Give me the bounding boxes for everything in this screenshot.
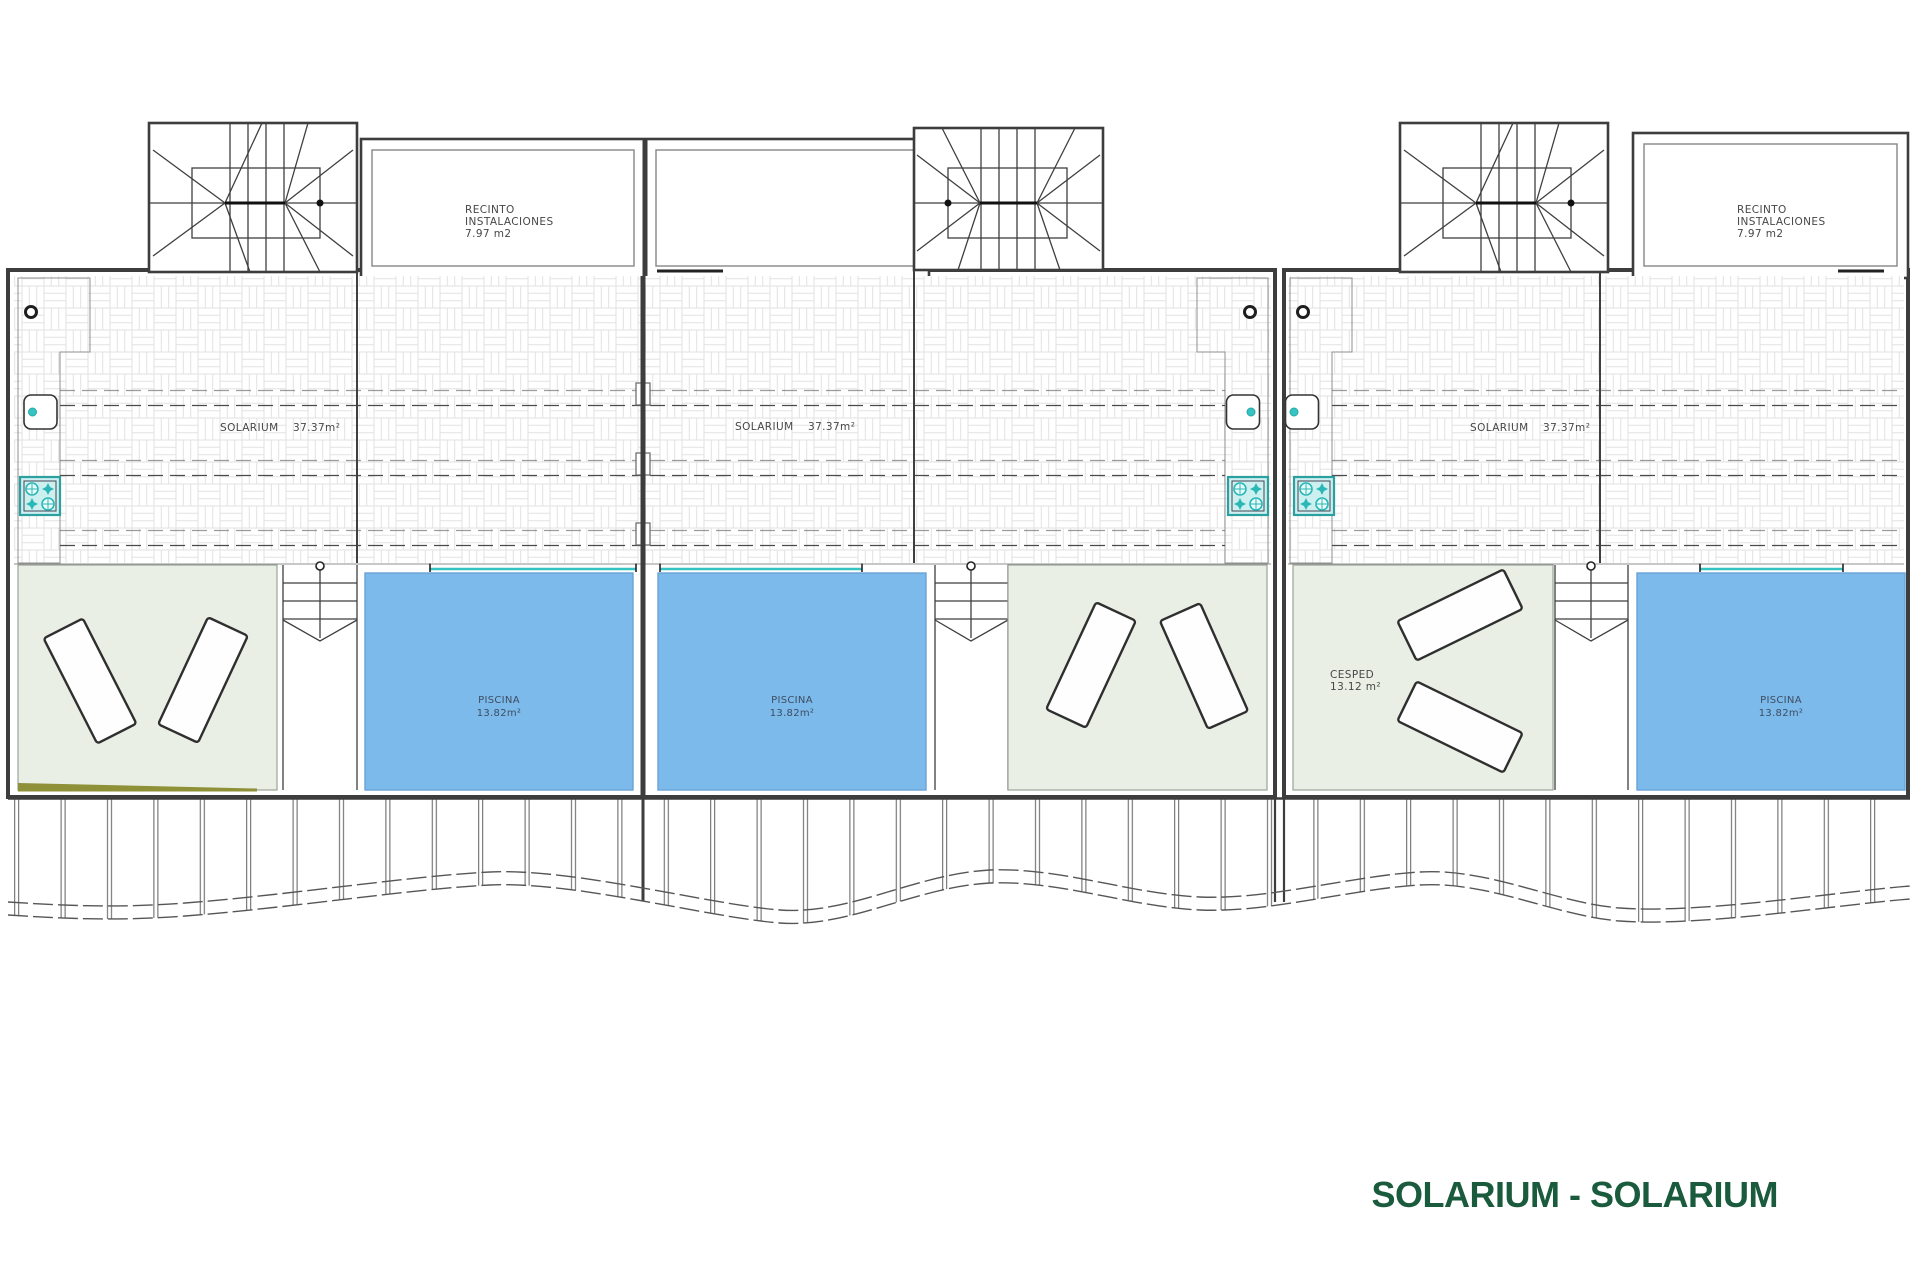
grill-icon bbox=[20, 477, 60, 515]
pool bbox=[365, 573, 633, 790]
unit-2-stairwell bbox=[914, 128, 1103, 270]
piscina-area: 13.82m² bbox=[477, 708, 521, 719]
recinto-area: 7.97 m2 bbox=[1737, 228, 1783, 240]
recinto-label-line1: RECINTO bbox=[1737, 204, 1787, 216]
stair-node-dot bbox=[317, 200, 324, 207]
sink-icon bbox=[1286, 395, 1319, 429]
light-icon bbox=[1298, 307, 1309, 318]
unit-1-solarium: SOLARIUM 37.37m² bbox=[14, 272, 641, 563]
solarium-label: SOLARIUM bbox=[735, 421, 794, 433]
boundary-fence bbox=[8, 797, 1910, 1000]
unit-3-solarium: SOLARIUM 37.37m² bbox=[1286, 272, 1905, 563]
sink-icon bbox=[24, 395, 57, 429]
light-icon bbox=[1245, 307, 1256, 318]
solarium-area: 37.37m² bbox=[808, 421, 855, 433]
solarium-label: SOLARIUM bbox=[220, 422, 279, 434]
pool bbox=[1637, 573, 1905, 790]
roof-plant-rooms-a: RECINTO INSTALACIONES 7.97 m2 bbox=[361, 139, 929, 278]
solarium-area: 37.37m² bbox=[293, 422, 340, 434]
floorplan-canvas: RECINTO INSTALACIONES 7.97 m2 RECINTO IN… bbox=[0, 0, 1920, 1280]
cesped-label: CESPED bbox=[1330, 669, 1374, 681]
recinto-area: 7.97 m2 bbox=[465, 228, 511, 240]
unit-3-plant-room: RECINTO INSTALACIONES 7.97 m2 bbox=[1633, 133, 1908, 278]
solarium-label: SOLARIUM bbox=[1470, 422, 1529, 434]
stair-node-dot bbox=[945, 200, 952, 207]
piscina-label: PISCINA bbox=[478, 695, 520, 706]
sheet-title: SOLARIUM - SOLARIUM bbox=[1372, 1174, 1778, 1215]
solarium-area: 37.37m² bbox=[1543, 422, 1590, 434]
grill-icon bbox=[1228, 477, 1268, 515]
lawn bbox=[18, 565, 277, 790]
cesped-area: 13.12 m² bbox=[1330, 681, 1381, 693]
sink-icon bbox=[1227, 395, 1260, 429]
recinto-label-line2: INSTALACIONES bbox=[1737, 216, 1826, 228]
light-icon bbox=[26, 307, 37, 318]
stair-node-dot bbox=[1568, 200, 1575, 207]
grill-icon bbox=[1294, 477, 1334, 515]
unit-2-solarium: SOLARIUM 37.37m² bbox=[645, 270, 1271, 563]
unit-1-stairwell bbox=[149, 123, 357, 272]
recinto-label-line2: INSTALACIONES bbox=[465, 216, 554, 228]
pool bbox=[658, 573, 926, 790]
piscina-area: 13.82m² bbox=[1759, 708, 1803, 719]
unit-3-stairwell bbox=[1400, 123, 1608, 272]
recinto-label-line1: RECINTO bbox=[465, 204, 515, 216]
piscina-label: PISCINA bbox=[771, 695, 813, 706]
piscina-area: 13.82m² bbox=[770, 708, 814, 719]
piscina-label: PISCINA bbox=[1760, 695, 1802, 706]
